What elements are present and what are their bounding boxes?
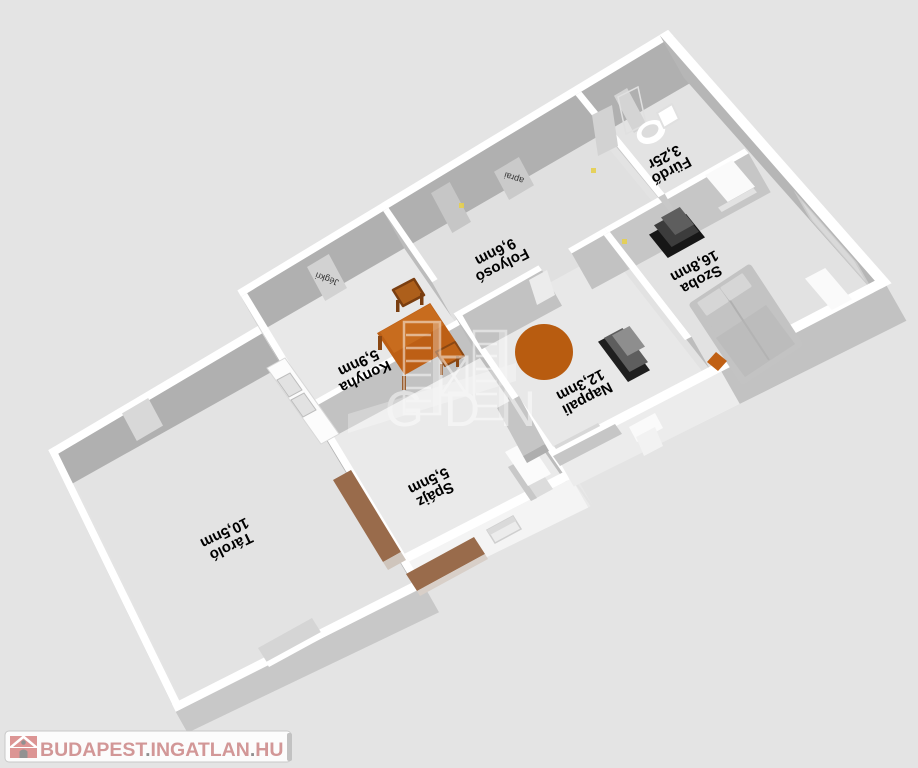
svg-text:GDN: GDN [385, 381, 556, 437]
svg-text:BUDAPEST.INGATLAN.HU: BUDAPEST.INGATLAN.HU [40, 739, 283, 761]
